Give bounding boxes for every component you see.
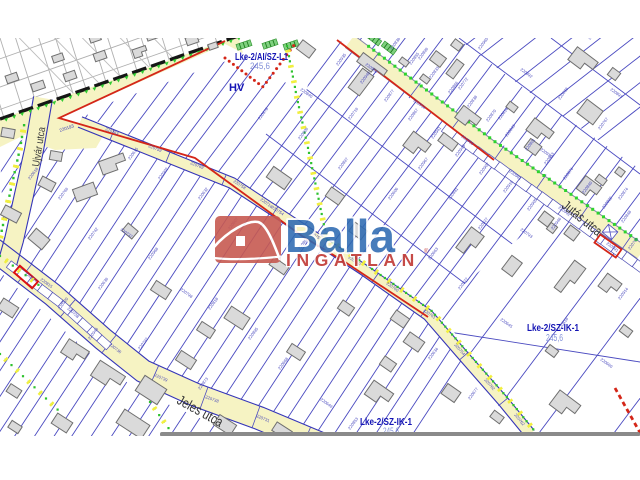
svg-text:®: ® <box>424 248 429 255</box>
svg-text:245,6: 245,6 <box>250 61 270 71</box>
svg-text:INGATLAN: INGATLAN <box>286 250 420 270</box>
svg-text:HV: HV <box>229 82 245 94</box>
svg-text:245,6: 245,6 <box>546 333 563 344</box>
